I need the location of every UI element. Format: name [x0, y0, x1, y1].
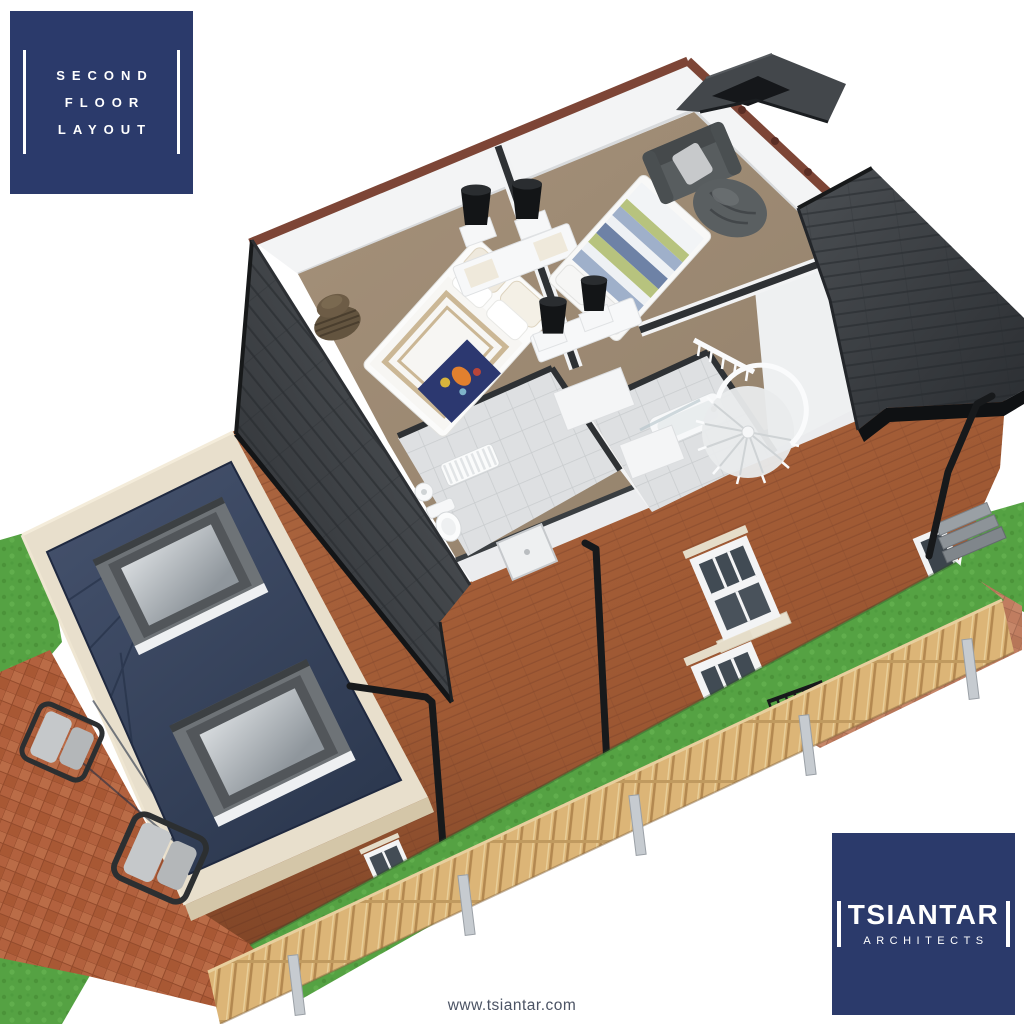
poster-canvas: SECOND FLOOR LAYOUT TSIANTAR ARCHITECTS … — [0, 0, 1024, 1024]
logo-left-bar — [837, 901, 841, 947]
title-line-2: FLOOR — [58, 95, 146, 110]
logo-right-bar — [1006, 901, 1010, 947]
company-tagline: ARCHITECTS — [858, 935, 988, 947]
washbasin — [415, 483, 433, 501]
title-line-1: SECOND — [49, 68, 154, 83]
title-lines: SECOND FLOOR LAYOUT — [10, 11, 193, 194]
title-line-3: LAYOUT — [51, 122, 152, 137]
company-name: TSIANTAR — [848, 901, 999, 929]
small-hip-roof — [676, 54, 846, 122]
title-badge: SECOND FLOOR LAYOUT — [10, 11, 193, 194]
website-url: www.tsiantar.com — [0, 997, 1024, 1015]
logo-badge: TSIANTAR ARCHITECTS — [832, 833, 1015, 1015]
logo-row: TSIANTAR ARCHITECTS — [837, 901, 1009, 947]
logo-text-block: TSIANTAR ARCHITECTS — [848, 901, 999, 947]
